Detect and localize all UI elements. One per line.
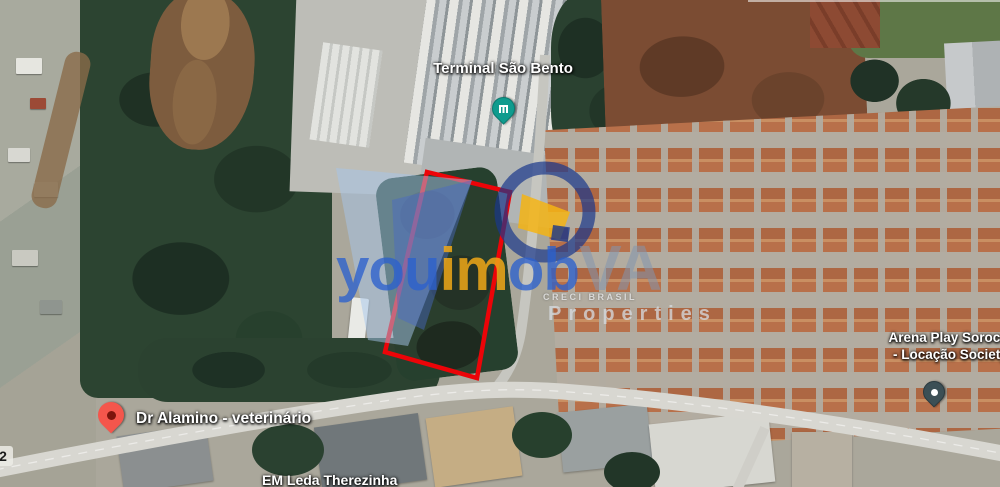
- label-arena-play[interactable]: Arena Play Sorocaba - Locação Society e: [856, 329, 1000, 363]
- building-icon: [499, 105, 508, 113]
- road-number-badge: 2: [0, 446, 13, 466]
- label-em-leda-therezinha[interactable]: EM Leda Therezinha: [262, 472, 397, 487]
- pin-inner: [98, 402, 124, 428]
- arena-label-line2: - Locação Society e: [856, 346, 1000, 363]
- pin-inner: [924, 382, 944, 402]
- wall-line: [748, 0, 1000, 2]
- dot-icon: [107, 411, 116, 420]
- label-dr-alamino-vet[interactable]: Dr Alamino - veterinário: [136, 410, 311, 428]
- vet-place-pin-icon[interactable]: [93, 397, 130, 434]
- pin-inner: [493, 98, 514, 119]
- label-terminal-sao-bento[interactable]: Terminal São Bento: [408, 60, 598, 77]
- arena-label-line1: Arena Play Sorocaba: [856, 329, 1000, 346]
- dot-icon: [931, 389, 938, 396]
- property-outline: [385, 172, 510, 378]
- satellite-map-canvas[interactable]: Terminal São Bento Dr Alamino - veteriná…: [0, 0, 1000, 487]
